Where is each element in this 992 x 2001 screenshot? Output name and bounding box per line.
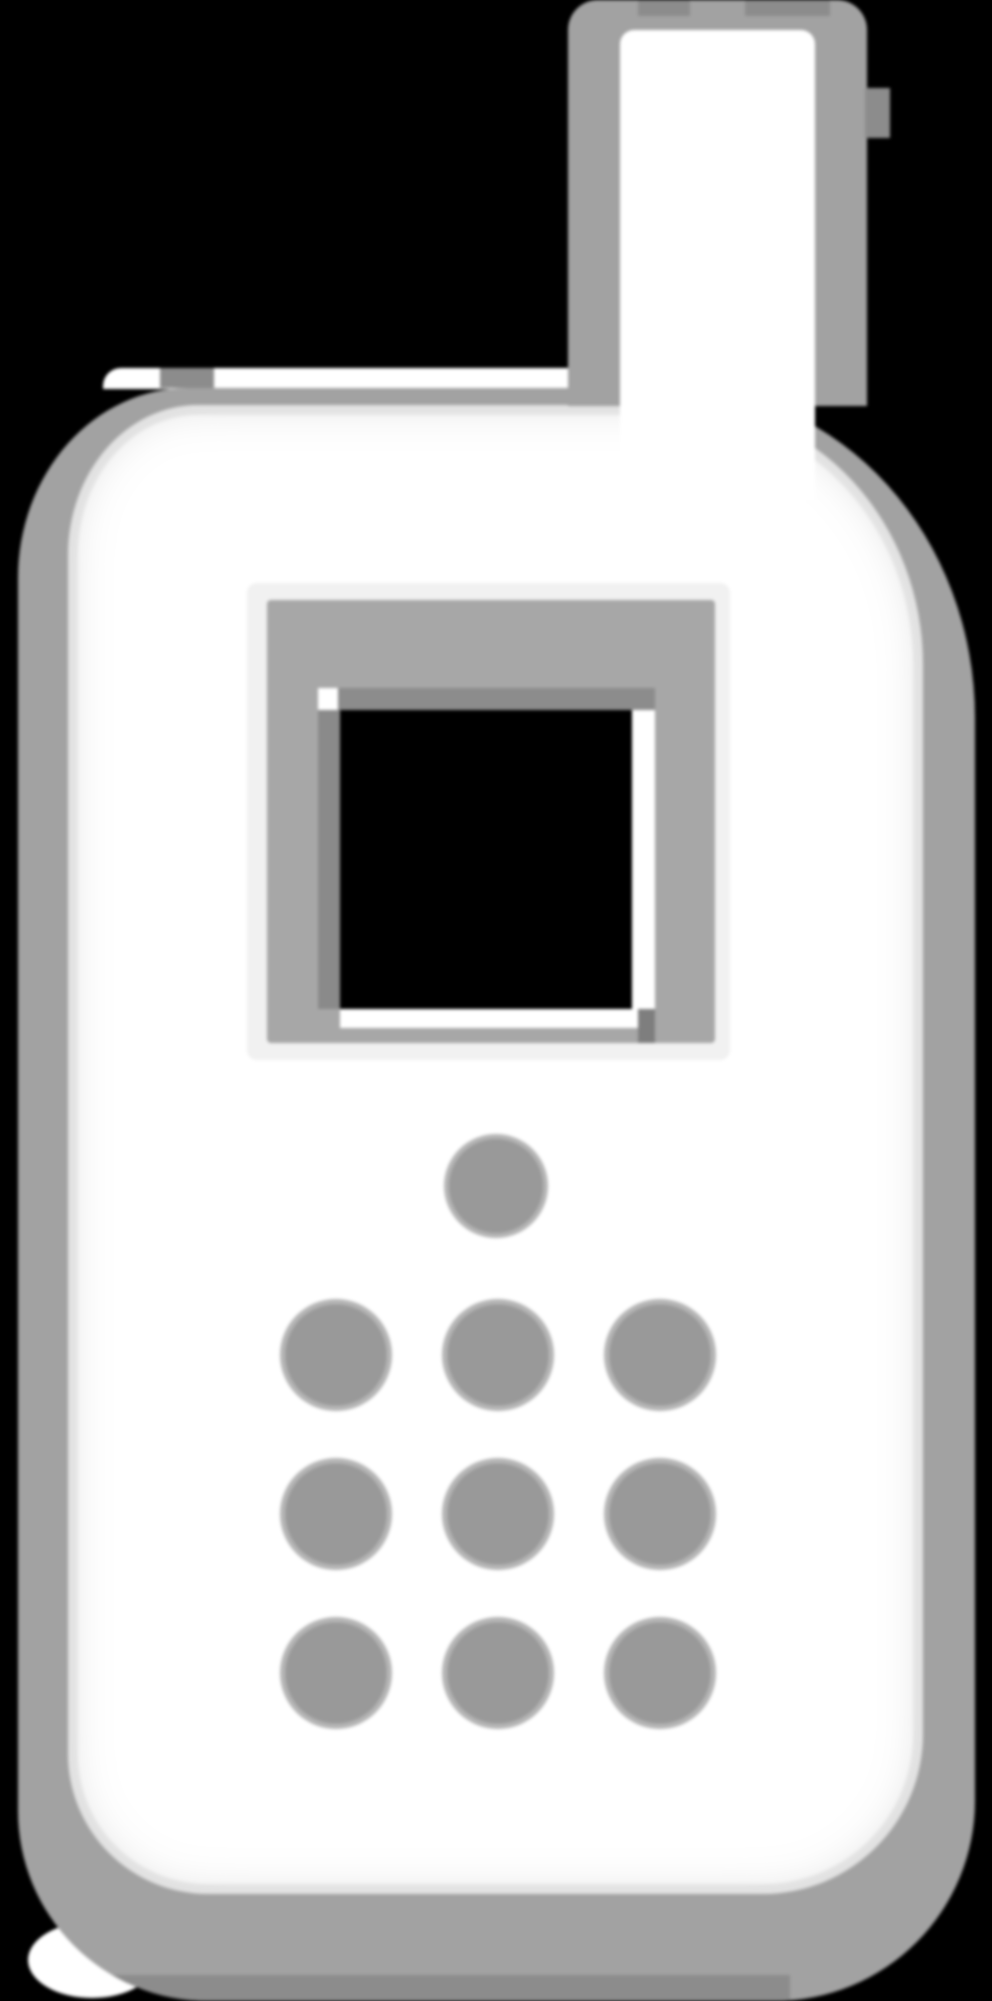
- keypad-dot: [442, 1617, 554, 1729]
- keypad-dot: [280, 1458, 392, 1570]
- screen-shadow-pixel: [638, 1009, 655, 1043]
- antenna-top-shade-right: [745, 0, 830, 16]
- keypad-dot: [442, 1299, 554, 1411]
- keypad-dot: [442, 1458, 554, 1570]
- antenna-side-nub: [865, 88, 890, 138]
- keypad-dot-top: [444, 1134, 548, 1238]
- screen-highlight-bottom: [340, 1009, 638, 1028]
- body-top-notch: [160, 368, 214, 388]
- screen-highlight-pixel: [318, 688, 338, 710]
- screen-highlight-right: [632, 710, 655, 1009]
- antenna-top-shade-left: [638, 0, 690, 16]
- keypad-dot: [280, 1617, 392, 1729]
- antenna: [620, 30, 815, 500]
- screen-inner-shadow-top: [338, 688, 655, 710]
- keypad-dot: [604, 1617, 716, 1729]
- screen-display: [340, 710, 632, 1009]
- keypad-dot: [280, 1299, 392, 1411]
- phone-icon: [0, 0, 992, 2001]
- keypad-dot: [604, 1458, 716, 1570]
- keypad-dot: [604, 1299, 716, 1411]
- phone-icon-canvas: [0, 0, 992, 2001]
- screen-inner-shadow-left: [318, 710, 340, 1009]
- body-bottom-shade: [90, 1975, 790, 2001]
